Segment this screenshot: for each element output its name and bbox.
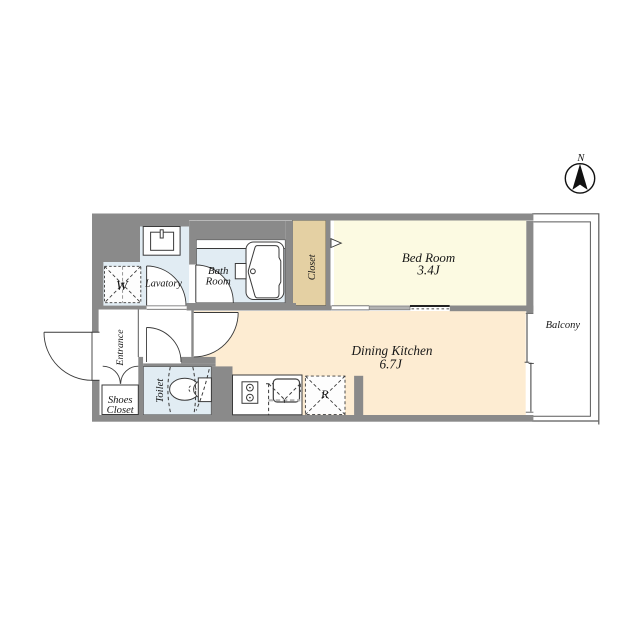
svg-text:N: N <box>576 153 585 164</box>
svg-text:Lavatory: Lavatory <box>144 279 182 290</box>
svg-text:Room: Room <box>205 276 231 288</box>
svg-text:Shoes: Shoes <box>108 395 133 406</box>
svg-text:Balcony: Balcony <box>546 320 581 331</box>
svg-text:Entrance: Entrance <box>115 329 126 367</box>
svg-text:6.7J: 6.7J <box>380 357 403 372</box>
svg-text:R: R <box>320 387 329 401</box>
svg-text:Closet: Closet <box>307 254 318 280</box>
svg-text:W: W <box>116 279 129 294</box>
svg-text:Closet: Closet <box>107 405 135 416</box>
svg-text:3.4J: 3.4J <box>416 263 440 278</box>
svg-text:Toilet: Toilet <box>154 378 166 403</box>
